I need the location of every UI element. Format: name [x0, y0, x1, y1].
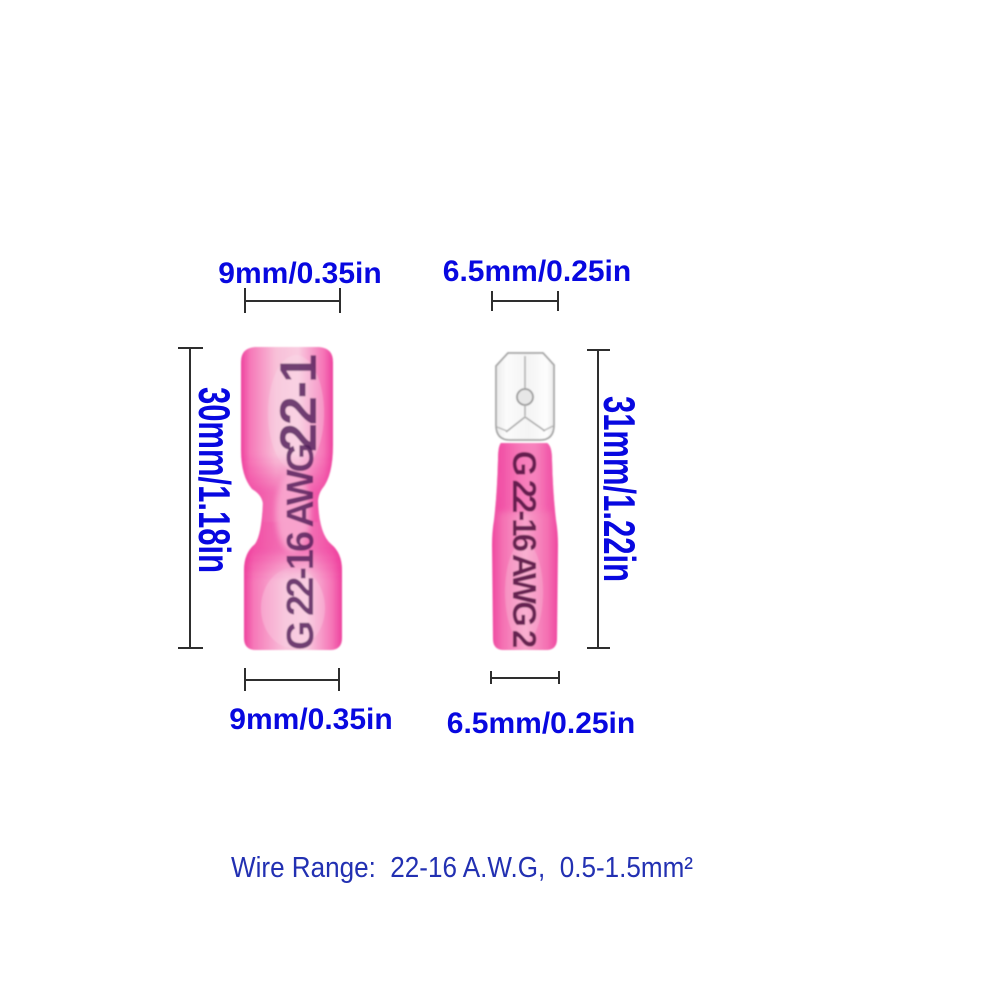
svg-text:6.5mm/0.25in: 6.5mm/0.25in [443, 255, 631, 288]
svg-text:22-1: 22-1 [270, 355, 328, 452]
svg-text:9mm/0.35in: 9mm/0.35in [218, 257, 381, 290]
svg-text:9mm/0.35in: 9mm/0.35in [229, 703, 392, 736]
svg-text:31mm/1.22in: 31mm/1.22in [594, 396, 644, 582]
svg-text:Wire Range: 22-16 A.W.G, 0.5: Wire Range: 22-16 A.W.G, 0.5-1.5mm² [231, 852, 693, 884]
svg-text:6.5mm/0.25in: 6.5mm/0.25in [447, 707, 635, 740]
svg-text:G 22-16 AWG 2: G 22-16 AWG 2 [506, 451, 543, 648]
svg-text:30mm/1.18in: 30mm/1.18in [189, 387, 239, 573]
svg-text:G 22-16 AWG: G 22-16 AWG [280, 444, 322, 650]
